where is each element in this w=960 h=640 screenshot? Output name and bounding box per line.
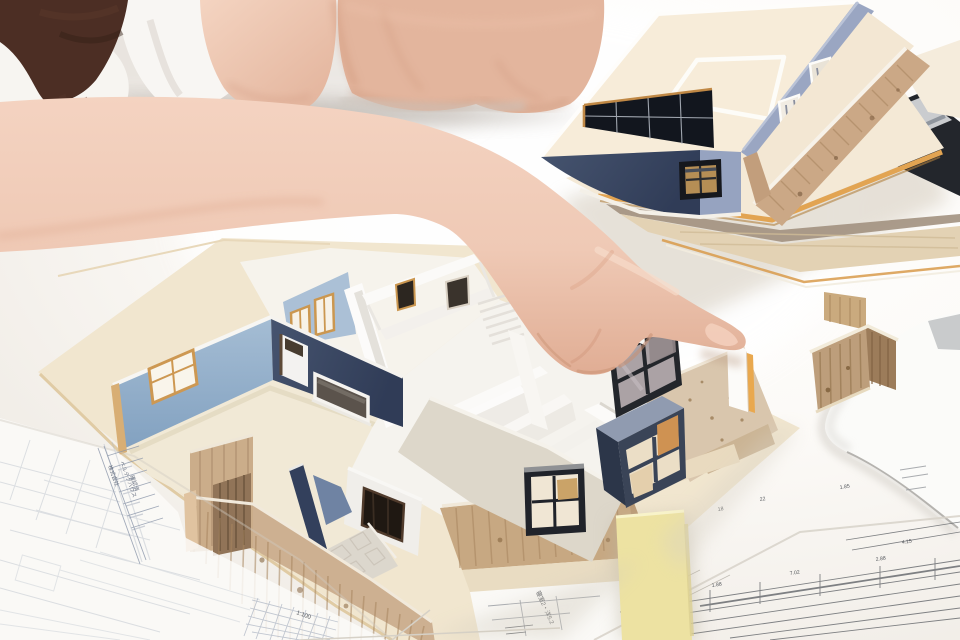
svg-text:22: 22 [759, 496, 766, 503]
